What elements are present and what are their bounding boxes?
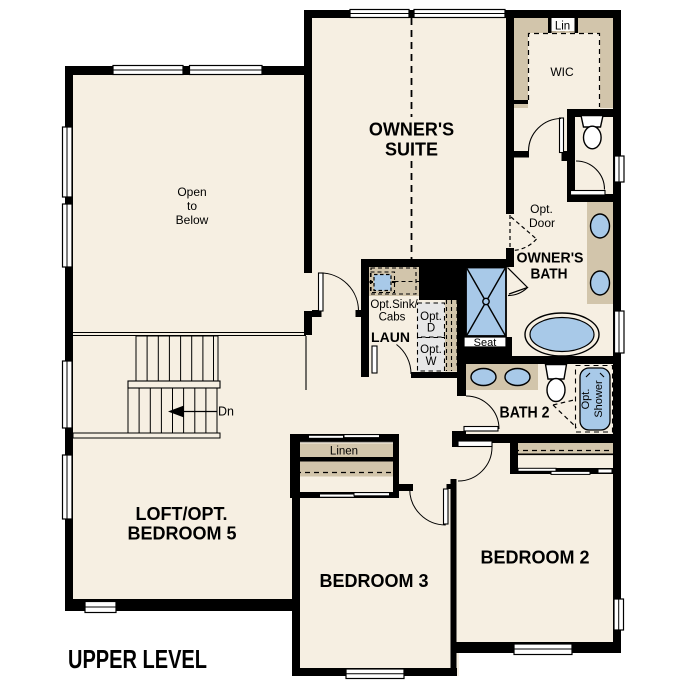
svg-text:Below: Below [176, 213, 209, 227]
svg-text:Shower: Shower [593, 380, 605, 418]
svg-text:BATH: BATH [531, 266, 568, 283]
svg-text:UPPER LEVEL: UPPER LEVEL [68, 644, 207, 674]
svg-text:Opt.: Opt. [530, 202, 553, 216]
svg-text:W: W [426, 356, 437, 368]
svg-text:SUITE: SUITE [385, 140, 438, 160]
svg-text:Opt.Sink/: Opt.Sink/ [370, 299, 418, 311]
svg-text:BEDROOM 5: BEDROOM 5 [127, 524, 236, 544]
svg-text:LAUN: LAUN [371, 329, 410, 345]
svg-text:BATH 2: BATH 2 [500, 405, 550, 422]
svg-text:D: D [427, 323, 435, 335]
svg-text:Linen: Linen [330, 446, 358, 458]
svg-text:OWNER'S: OWNER'S [517, 250, 584, 267]
svg-text:LOFT/OPT.: LOFT/OPT. [136, 504, 228, 524]
svg-text:Opt.: Opt. [580, 389, 592, 410]
svg-text:Seat: Seat [474, 337, 497, 349]
svg-text:BEDROOM 2: BEDROOM 2 [480, 548, 589, 568]
svg-text:BEDROOM 3: BEDROOM 3 [319, 571, 428, 591]
svg-text:Dn: Dn [218, 405, 234, 419]
svg-text:OWNER'S: OWNER'S [369, 120, 454, 140]
svg-text:Door: Door [529, 216, 555, 230]
svg-text:Opt.: Opt. [420, 344, 442, 356]
svg-text:Open: Open [177, 185, 206, 199]
svg-text:WIC: WIC [550, 65, 574, 79]
svg-text:Opt.: Opt. [420, 311, 442, 323]
svg-text:to: to [187, 199, 197, 213]
svg-text:Cabs: Cabs [379, 312, 406, 324]
svg-text:Lin: Lin [555, 21, 570, 33]
